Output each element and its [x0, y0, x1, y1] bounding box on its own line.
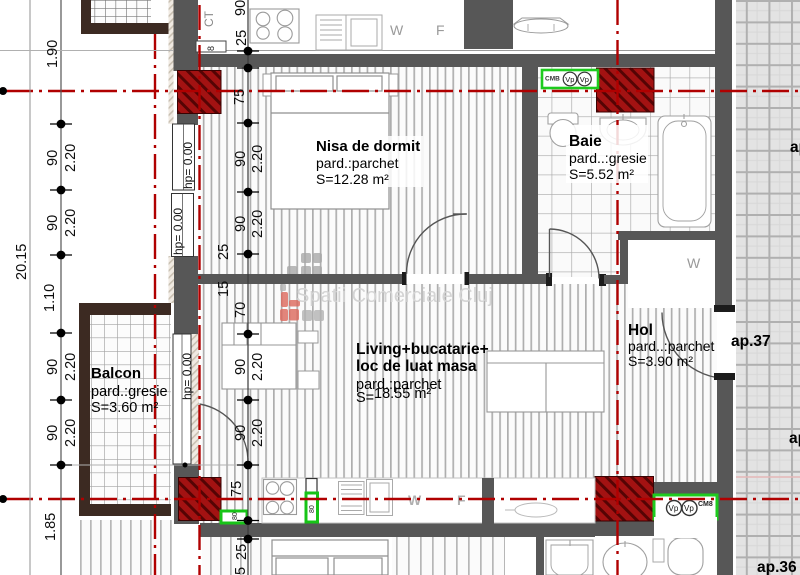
svg-text:90: 90 [233, 425, 249, 441]
svg-text:ap.36: ap.36 [757, 559, 797, 575]
svg-text:2.20: 2.20 [250, 353, 266, 381]
svg-text:Balcon: Balcon [91, 365, 141, 382]
svg-text:80: 80 [309, 505, 316, 513]
svg-text:15: 15 [216, 281, 232, 297]
svg-text:75: 75 [232, 89, 248, 105]
svg-text:90: 90 [45, 150, 61, 166]
svg-text:90: 90 [233, 216, 249, 232]
svg-text:70: 70 [233, 302, 249, 318]
svg-text:2.20: 2.20 [63, 144, 79, 172]
svg-text:1.85: 1.85 [43, 513, 59, 541]
svg-text:CT: CT [202, 10, 216, 27]
svg-text:90: 90 [45, 425, 61, 441]
svg-text:F: F [436, 22, 445, 38]
svg-text:2.20: 2.20 [63, 419, 79, 447]
svg-text:S=3.60 m²: S=3.60 m² [91, 400, 158, 416]
svg-text:90: 90 [233, 151, 249, 167]
svg-text:1.90: 1.90 [45, 40, 61, 68]
svg-text:hp= 0.00: hp= 0.00 [181, 142, 195, 189]
svg-text:S=12.28 m²: S=12.28 m² [316, 171, 389, 187]
svg-text:pard.:parchet: pard.:parchet [316, 155, 399, 171]
svg-text:2.20: 2.20 [63, 209, 79, 237]
svg-text:W: W [687, 255, 701, 271]
svg-text:Baie: Baie [569, 133, 602, 150]
svg-text:ap.: ap. [789, 430, 800, 447]
svg-text:Nisa de dormit: Nisa de dormit [316, 138, 420, 155]
svg-text:90: 90 [45, 359, 61, 375]
svg-text:ap.37: ap.37 [731, 333, 771, 350]
svg-text:90: 90 [233, 359, 249, 375]
svg-text:25: 25 [234, 30, 250, 46]
svg-text:CMB: CMB [545, 76, 560, 83]
svg-text:2.20: 2.20 [250, 145, 266, 173]
svg-text:pard.:gresie: pard.:gresie [91, 384, 168, 400]
svg-text:S=: S= [356, 390, 374, 406]
svg-text:90: 90 [233, 0, 249, 16]
svg-text:75: 75 [229, 481, 245, 497]
svg-text:pard..:gresie: pard..:gresie [569, 150, 647, 166]
svg-text:Spatii Comerciale Cluj: Spatii Comerciale Cluj [296, 285, 493, 307]
svg-text:ap.: ap. [790, 139, 800, 156]
svg-text:20.15: 20.15 [14, 244, 30, 280]
svg-text:S=3.90 m²: S=3.90 m² [628, 353, 693, 369]
svg-text:hp= 0.00: hp= 0.00 [180, 353, 194, 400]
svg-text:Living+bucatarie+: Living+bucatarie+ [356, 341, 489, 358]
svg-text:loc de luat masa: loc de luat masa [356, 358, 477, 375]
svg-text:S=5.52 m²: S=5.52 m² [569, 166, 634, 182]
svg-text:25: 25 [216, 244, 232, 260]
svg-text:Vp: Vp [684, 504, 694, 513]
svg-text:W: W [390, 22, 404, 38]
svg-text:8: 8 [206, 46, 216, 51]
svg-text:90: 90 [45, 215, 61, 231]
svg-text:pard..:parchet: pard..:parchet [628, 338, 714, 354]
svg-text:2.20: 2.20 [250, 210, 266, 238]
svg-text:1.10: 1.10 [42, 284, 58, 312]
svg-text:2.20: 2.20 [250, 419, 266, 447]
svg-text:5: 5 [233, 567, 249, 575]
svg-text:Hol: Hol [628, 322, 653, 339]
svg-text:Vp: Vp [565, 75, 574, 84]
svg-text:CM8: CM8 [698, 501, 713, 508]
svg-text:2.20: 2.20 [63, 353, 79, 381]
svg-text:25: 25 [234, 544, 250, 560]
svg-text:18.55 m²: 18.55 m² [374, 386, 431, 402]
svg-text:hp= 0.00: hp= 0.00 [171, 208, 185, 255]
svg-text:Vp: Vp [669, 504, 679, 513]
svg-text:80: 80 [232, 512, 239, 520]
svg-text:Vp: Vp [580, 75, 589, 84]
